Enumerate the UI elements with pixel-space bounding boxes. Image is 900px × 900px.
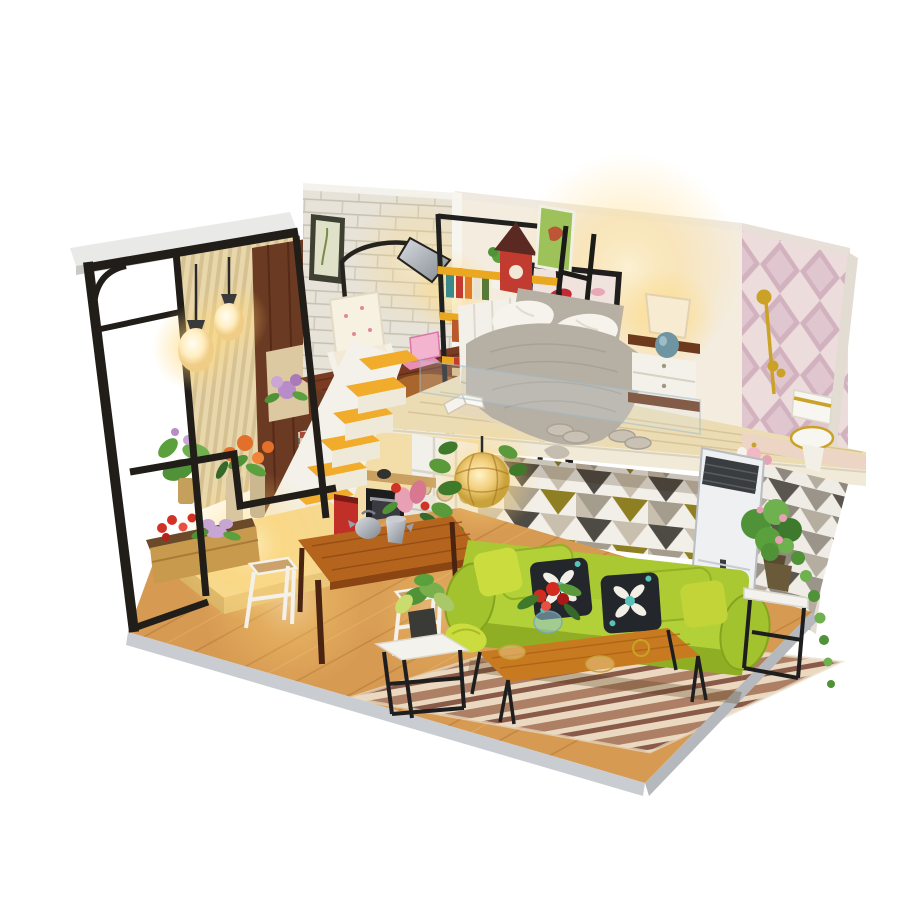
chartreuse-pillow-left [472,546,524,598]
framed-botanical-print [309,214,345,284]
floral-pillow-2 [600,572,662,634]
pendant-bulb-1 [178,328,214,372]
pendant-bulb-2 [214,303,244,341]
plant-pot [764,562,792,592]
dollhouse-illustration [0,0,900,900]
chartreuse-pillow-right [679,579,729,629]
product-photo [0,0,900,900]
